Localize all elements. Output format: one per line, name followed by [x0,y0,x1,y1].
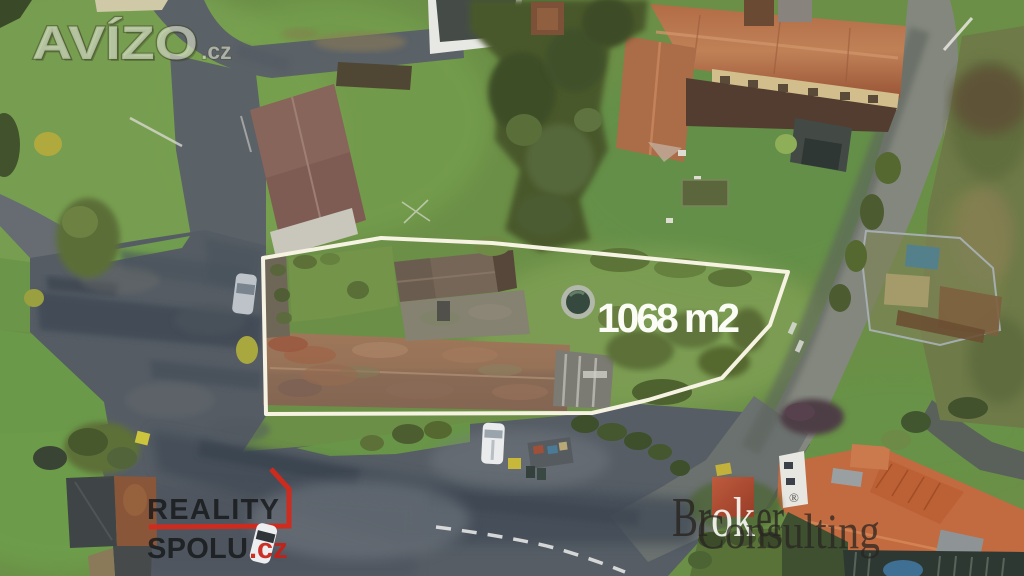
svg-text:1068 m2: 1068 m2 [597,295,741,341]
svg-text:Consulting: Consulting [697,503,880,559]
svg-text:SPOLU: SPOLU [147,533,248,565]
svg-text:REALITY: REALITY [147,494,279,526]
svg-text:AVÍZO: AVÍZO [32,16,198,69]
svg-text:.cz: .cz [249,533,288,565]
svg-text:.cz: .cz [201,38,232,64]
